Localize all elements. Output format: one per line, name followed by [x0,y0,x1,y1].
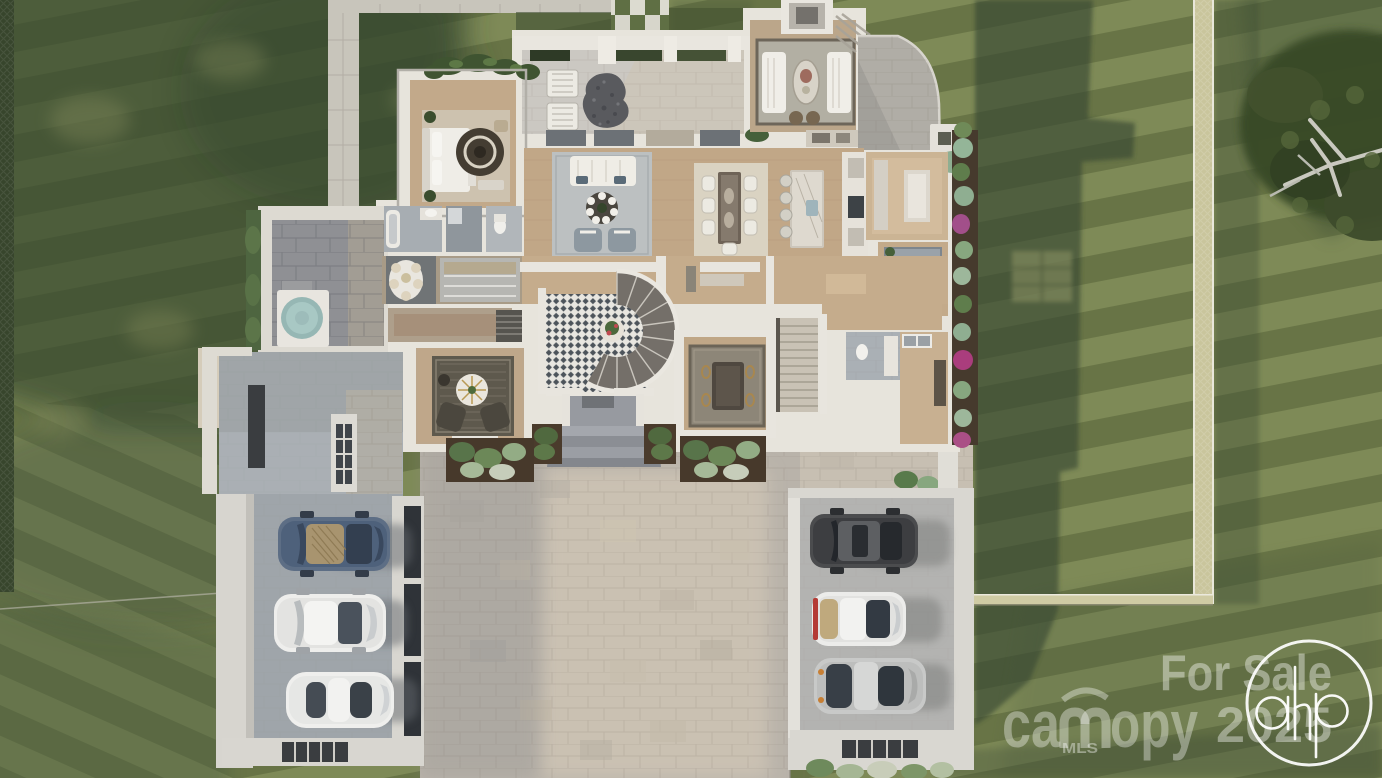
svg-text:ca: ca [1002,687,1061,761]
svg-text:2025: 2025 [1216,697,1332,753]
svg-text:MLS: MLS [1062,740,1098,757]
svg-text:opy: opy [1110,687,1198,761]
